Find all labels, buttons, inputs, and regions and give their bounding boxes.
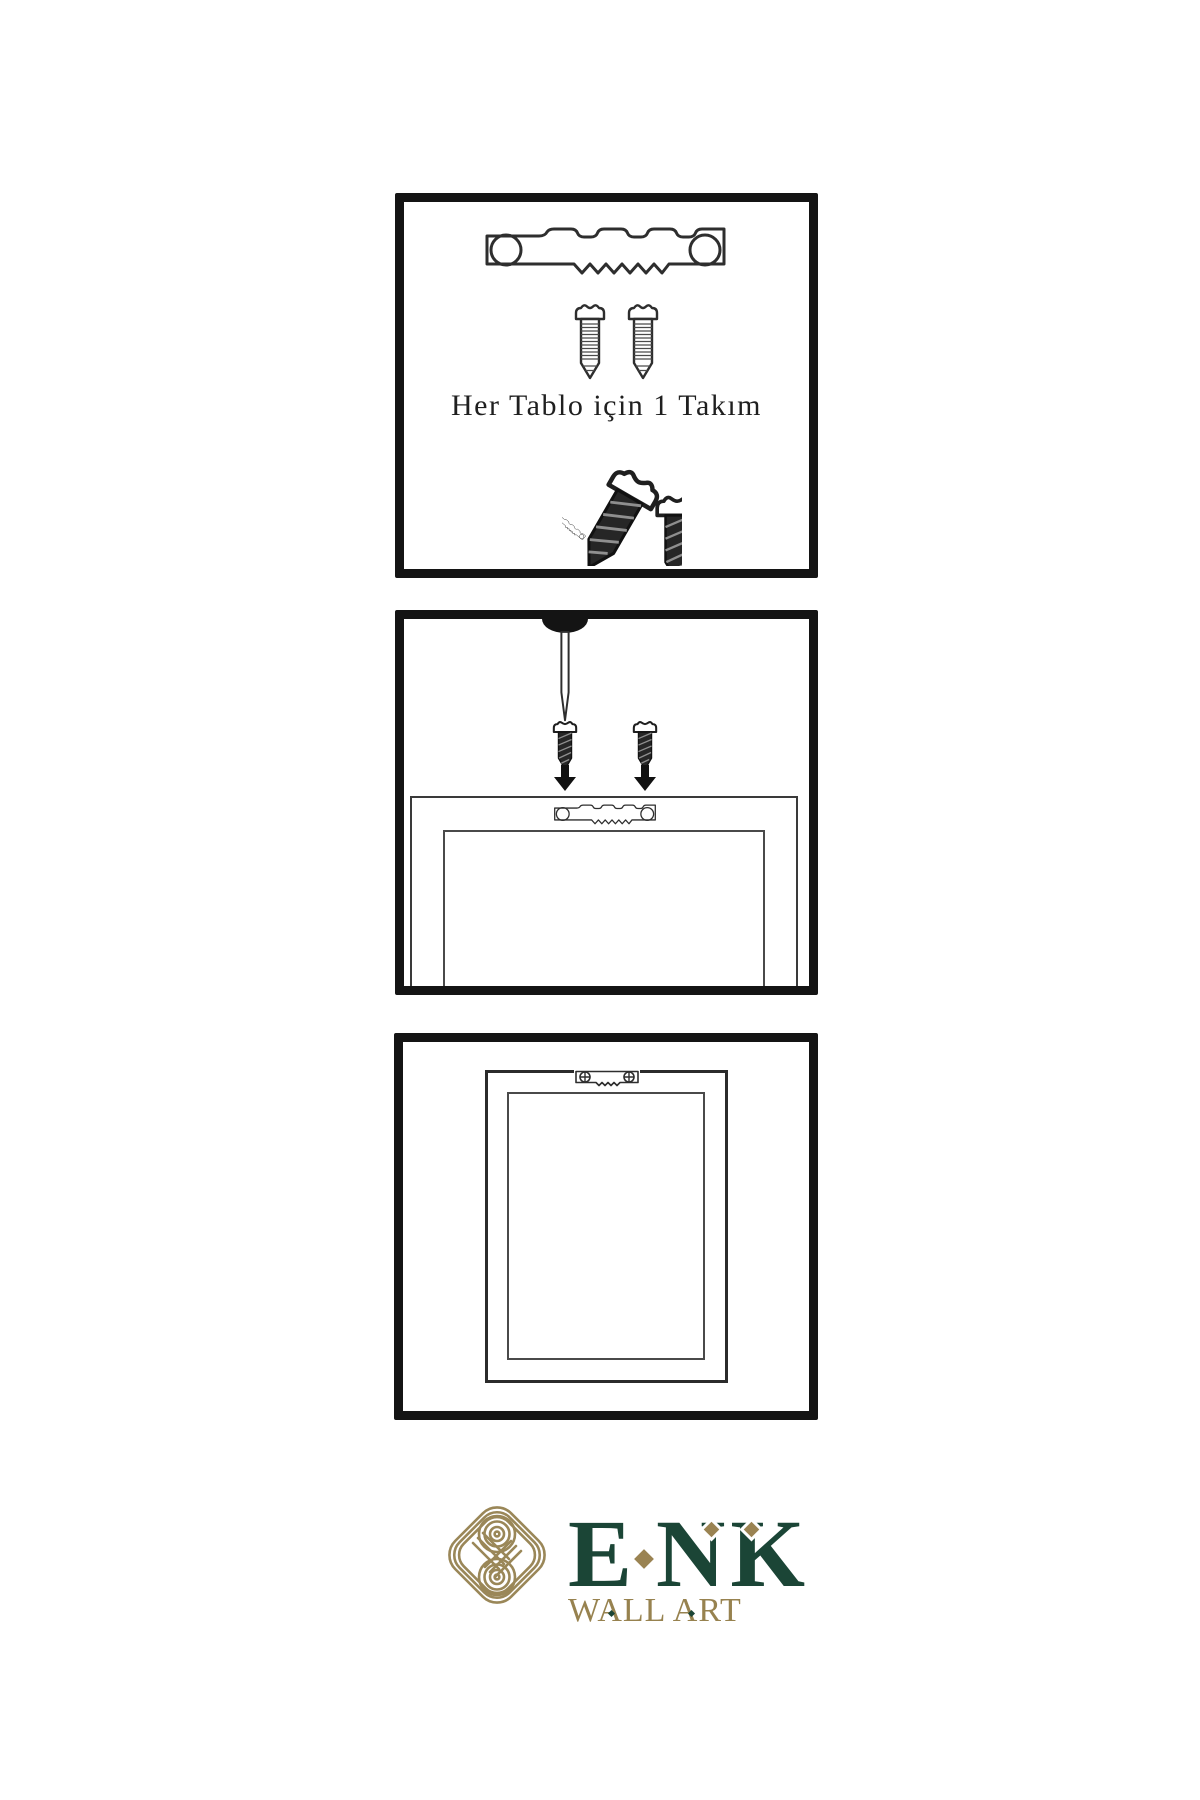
frame-back-inner xyxy=(443,830,765,986)
brand-wordmark: E N K xyxy=(568,1506,805,1602)
interlaced-knot-icon xyxy=(437,1488,557,1623)
brand-letter-n: N xyxy=(656,1506,725,1602)
diamond-icon xyxy=(634,1549,654,1569)
brand-letter-e: E xyxy=(568,1506,632,1602)
sawtooth-hanger-icon xyxy=(553,802,657,826)
screw-icon xyxy=(625,302,661,380)
sawtooth-hanger-icon xyxy=(483,223,728,277)
arrow-down-icon xyxy=(633,765,657,791)
panel-hang-frame xyxy=(394,1033,818,1420)
instruction-sheet: Her Tablo için 1 Takım xyxy=(0,0,1200,1800)
screw-icon xyxy=(572,302,608,380)
panel-hardware-kit: Her Tablo için 1 Takım xyxy=(395,193,818,578)
arrow-down-icon xyxy=(553,765,577,791)
mounted-hanger-with-screws-icon xyxy=(574,1069,640,1087)
kit-caption: Her Tablo için 1 Takım xyxy=(404,388,809,424)
frame-front-inner xyxy=(507,1092,705,1360)
brand-letter-k: K xyxy=(730,1506,805,1602)
tilted-hanger-with-screws-icon xyxy=(562,448,682,566)
brand-tagline: WALL ART xyxy=(568,1594,742,1628)
wall-nail-icon xyxy=(553,631,577,723)
panel-attach-hanger xyxy=(395,610,818,995)
